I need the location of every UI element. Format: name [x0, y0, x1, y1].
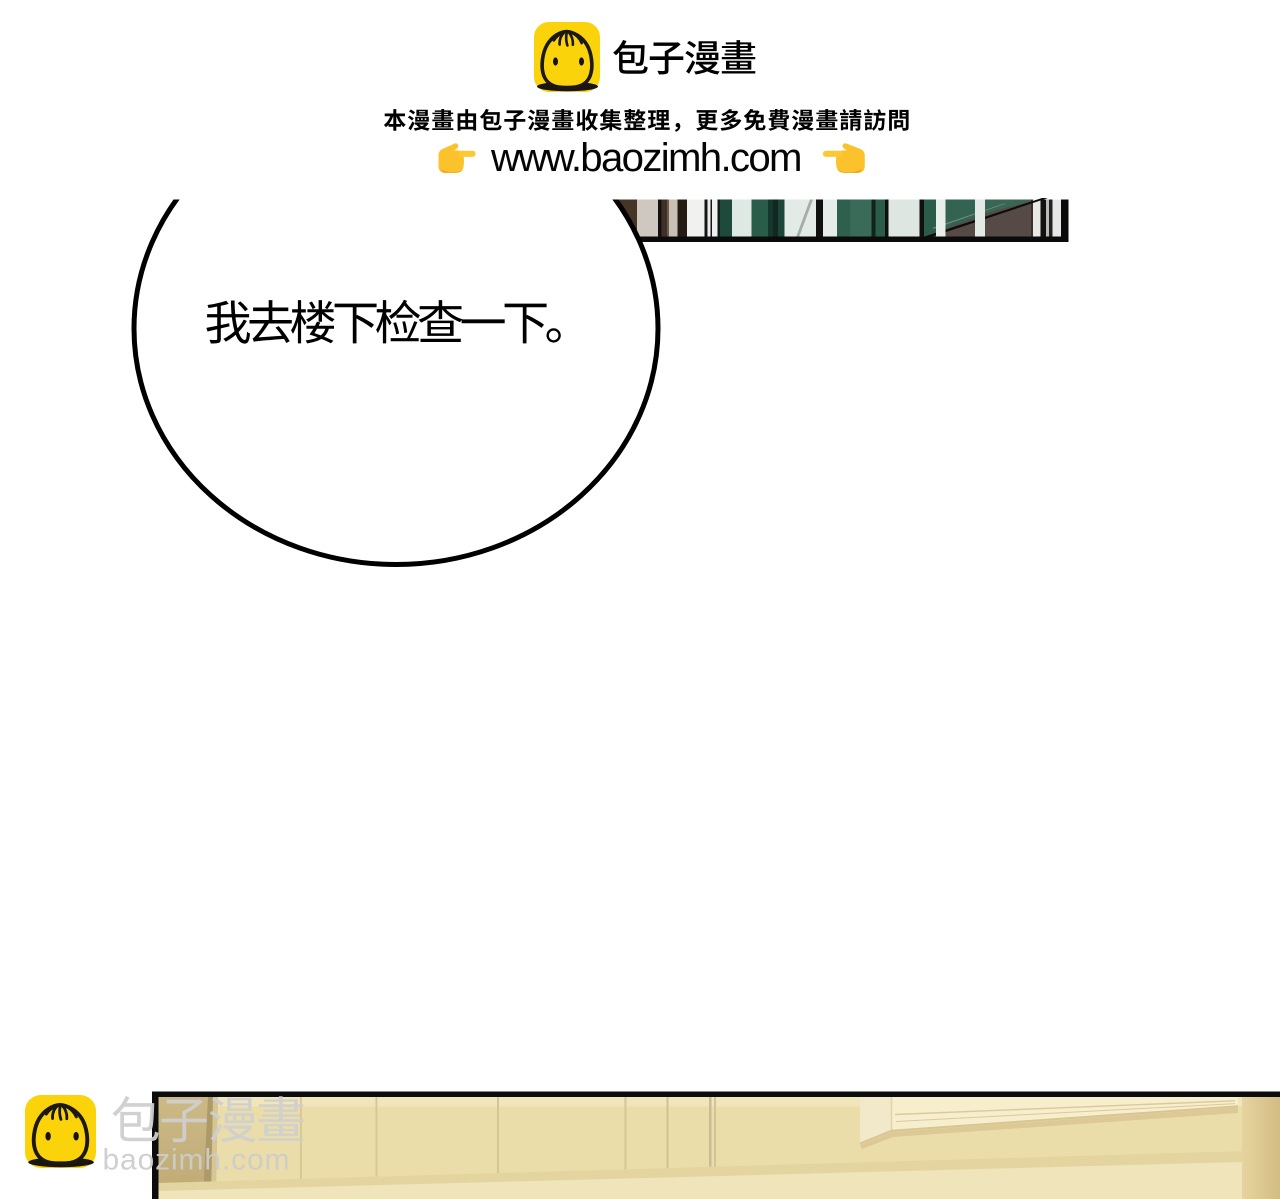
svg-text:www.baozimh.com: www.baozimh.com	[490, 135, 803, 180]
svg-text:baozimh.com: baozimh.com	[103, 1144, 290, 1177]
